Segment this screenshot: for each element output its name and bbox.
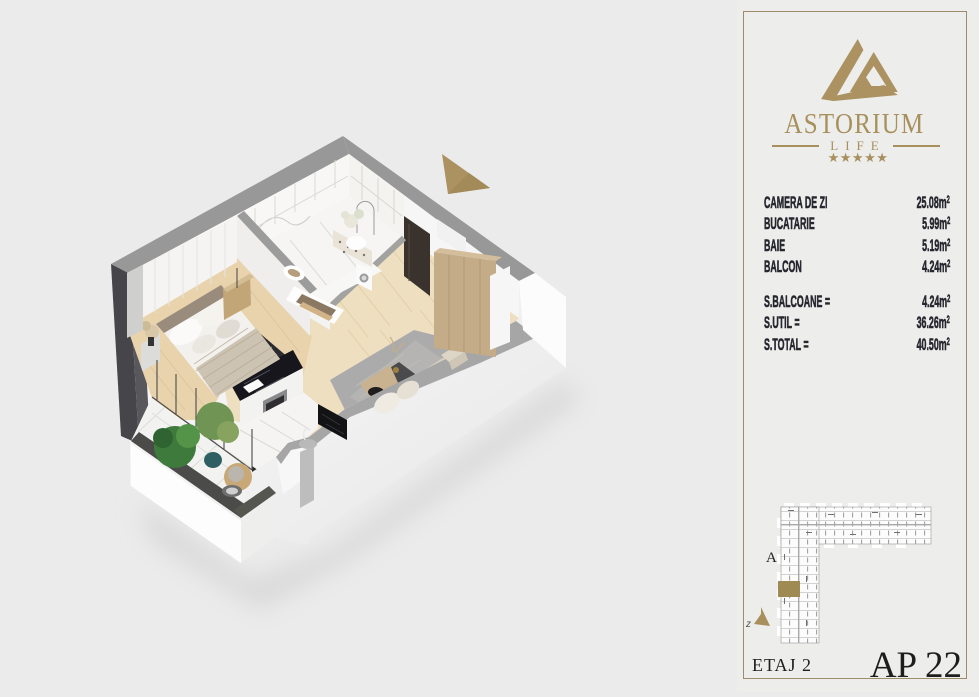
svg-text:z: z	[745, 619, 751, 630]
